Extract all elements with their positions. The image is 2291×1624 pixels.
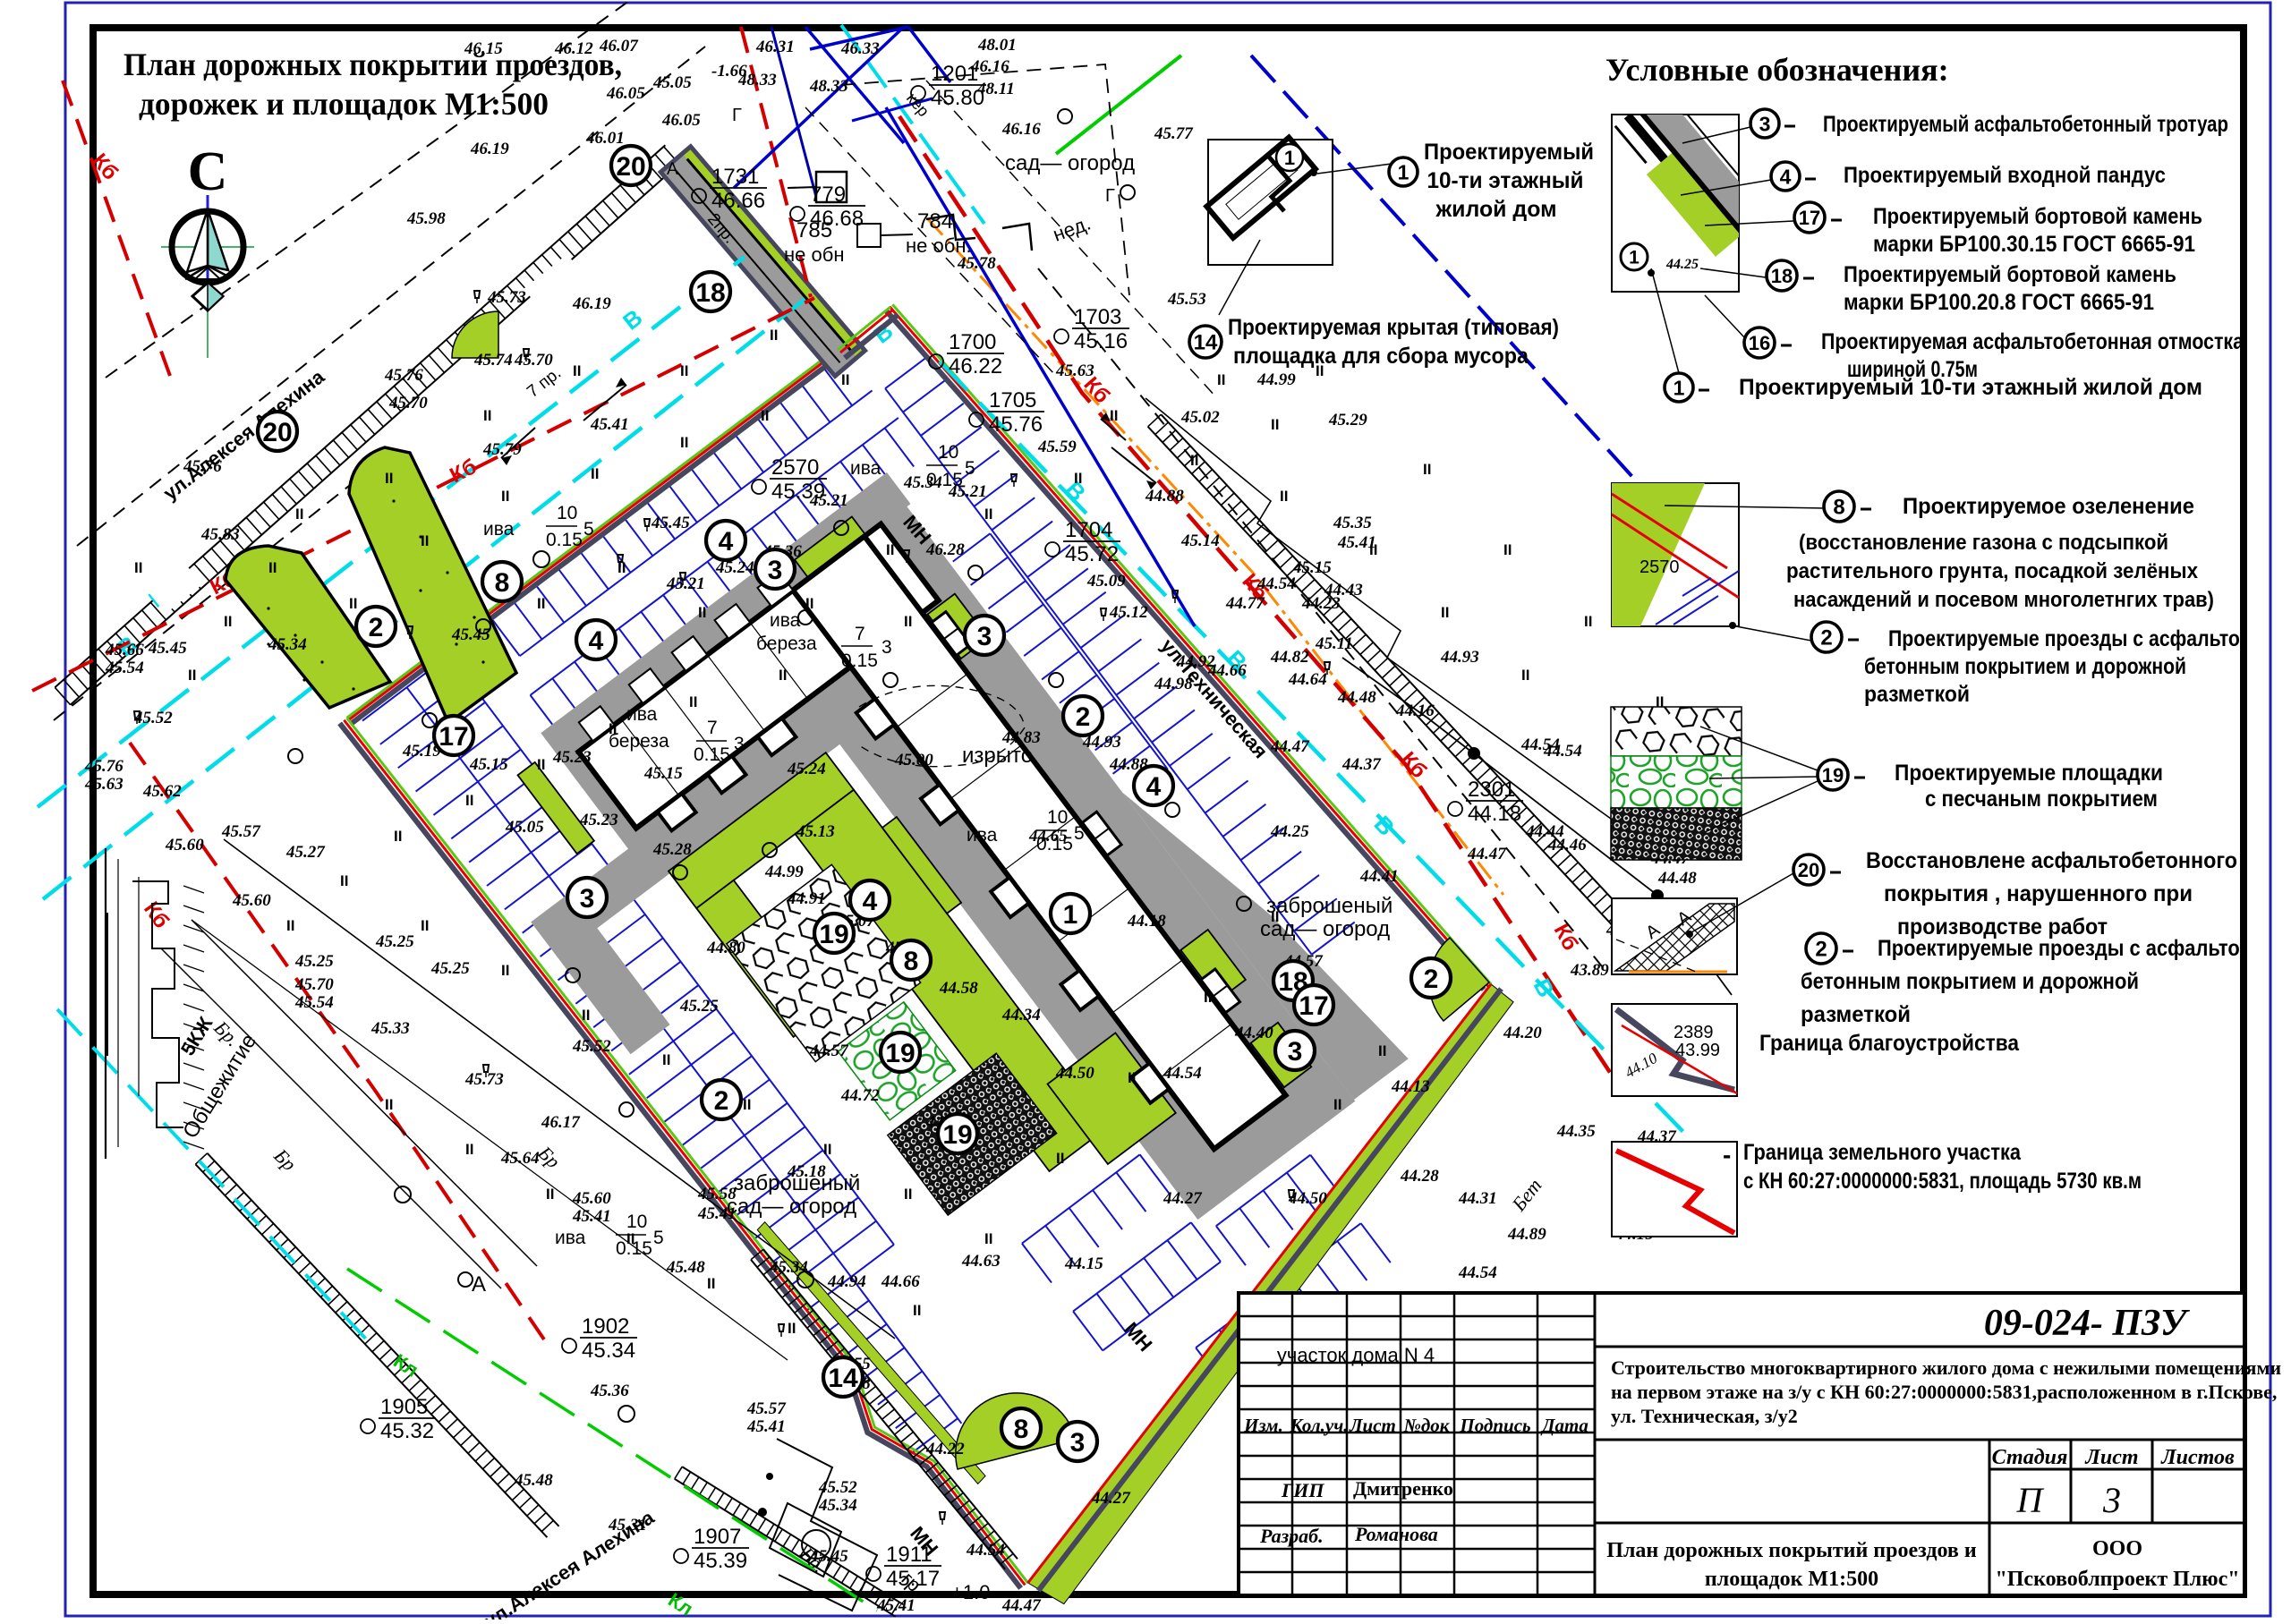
svg-text:1705: 1705 xyxy=(989,388,1036,412)
svg-text:сад— огород: сад— огород xyxy=(1005,151,1135,175)
svg-text:II: II xyxy=(626,1230,634,1247)
svg-text:44.22: 44.22 xyxy=(925,1440,965,1458)
svg-text:II: II xyxy=(609,720,617,737)
svg-text:1: 1 xyxy=(1629,248,1639,268)
svg-text:45.73: 45.73 xyxy=(487,288,526,307)
svg-text:не обн: не обн xyxy=(784,243,844,266)
svg-text:45.53: 45.53 xyxy=(1167,290,1206,309)
svg-text:45.36: 45.36 xyxy=(590,1382,629,1400)
svg-text:44.57: 44.57 xyxy=(809,1042,849,1060)
svg-text:44.94: 44.94 xyxy=(827,1272,866,1291)
svg-text:II: II xyxy=(286,917,294,934)
svg-text:II: II xyxy=(743,1096,751,1113)
svg-text:45.79: 45.79 xyxy=(482,440,522,459)
svg-text:46.28: 46.28 xyxy=(925,540,965,559)
svg-text:46.05: 46.05 xyxy=(661,111,701,130)
svg-text:10: 10 xyxy=(938,442,958,463)
svg-text:II: II xyxy=(1056,1150,1064,1167)
svg-text:17: 17 xyxy=(439,722,468,752)
svg-text:II: II xyxy=(1333,1096,1341,1113)
svg-text:45.32: 45.32 xyxy=(380,1419,434,1443)
svg-text:ива: ива xyxy=(850,458,881,479)
svg-text:45.59: 45.59 xyxy=(1037,438,1077,456)
svg-text:Проектируемые проезды с асфаль: Проектируемые проезды с асфальто- xyxy=(1888,626,2246,651)
svg-text:II: II xyxy=(573,362,581,379)
svg-text:46.31: 46.31 xyxy=(755,38,795,56)
svg-text:44.35: 44.35 xyxy=(1556,1122,1596,1141)
svg-text:II: II xyxy=(268,559,277,576)
svg-text:0.15: 0.15 xyxy=(841,650,878,671)
svg-text:5: 5 xyxy=(653,1228,664,1248)
svg-text:8: 8 xyxy=(1014,1415,1029,1444)
svg-text:45.09: 45.09 xyxy=(1086,572,1126,591)
svg-text:1700: 1700 xyxy=(949,330,996,354)
svg-text:II: II xyxy=(591,465,599,482)
svg-text:Условные обозначения:: Условные обозначения: xyxy=(1605,52,1949,88)
svg-text:44.28: 44.28 xyxy=(1400,1167,1439,1186)
svg-text:II: II xyxy=(1217,371,1225,388)
svg-text:45.24: 45.24 xyxy=(787,760,826,778)
svg-text:45.45: 45.45 xyxy=(809,1547,848,1566)
svg-text:1: 1 xyxy=(1284,147,1295,169)
svg-text:18: 18 xyxy=(695,278,725,308)
svg-text:(восстановление газона с подсы: (восстановление газона с подсыпкой xyxy=(1799,531,2168,555)
svg-text:II: II xyxy=(295,506,303,523)
svg-text:8: 8 xyxy=(1833,496,1844,520)
svg-text:II: II xyxy=(1280,488,1288,505)
svg-text:II: II xyxy=(340,872,348,889)
svg-text:45.48: 45.48 xyxy=(514,1471,553,1490)
svg-text:3: 3 xyxy=(768,556,783,585)
svg-text:с песчаным покрытием: с песчаным покрытием xyxy=(1925,786,2158,812)
svg-text:3: 3 xyxy=(580,884,595,914)
svg-text:45.70: 45.70 xyxy=(514,351,553,370)
svg-text:II: II xyxy=(886,541,894,558)
svg-text:45.29: 45.29 xyxy=(1328,411,1367,429)
svg-text:Проектируемый: Проектируемый xyxy=(1424,140,1594,165)
svg-text:45.13: 45.13 xyxy=(796,822,835,841)
svg-text:заброшеный: заброшеный xyxy=(1266,894,1392,918)
svg-text:48.01: 48.01 xyxy=(977,36,1017,55)
svg-text:779: 779 xyxy=(810,183,846,207)
svg-text:II: II xyxy=(188,667,196,684)
svg-text:44.47: 44.47 xyxy=(1467,845,1507,863)
svg-text:Подпись: Подпись xyxy=(1459,1415,1530,1436)
svg-text:44.99: 44.99 xyxy=(1256,370,1296,389)
svg-text:1: 1 xyxy=(1674,376,1685,399)
svg-text:С: С xyxy=(188,141,228,202)
svg-text:44.83: 44.83 xyxy=(1001,728,1041,747)
svg-text:на первом этаже на з/у с КН 60: на первом этаже на з/у с КН 60:27:000000… xyxy=(1611,1381,2277,1403)
svg-text:45.25: 45.25 xyxy=(294,952,334,971)
svg-text:44.64: 44.64 xyxy=(1288,670,1327,689)
svg-text:45.57: 45.57 xyxy=(221,822,261,841)
svg-text:II: II xyxy=(546,1186,554,1203)
svg-text:46.66: 46.66 xyxy=(711,189,765,213)
svg-text:43.99: 43.99 xyxy=(1675,1041,1720,1060)
svg-text:2: 2 xyxy=(1076,702,1091,732)
svg-text:45.60: 45.60 xyxy=(232,891,271,910)
svg-text:3: 3 xyxy=(734,734,745,754)
svg-text:45.45: 45.45 xyxy=(451,625,490,644)
svg-text:19: 19 xyxy=(1822,764,1844,786)
svg-text:II: II xyxy=(582,1007,590,1024)
svg-text:II: II xyxy=(1128,1069,1136,1086)
svg-text:45.45: 45.45 xyxy=(148,639,187,658)
svg-text:46.33: 46.33 xyxy=(840,39,880,58)
svg-text:45.78: 45.78 xyxy=(957,254,996,273)
svg-text:Проектируемые проезды с асфаль: Проектируемые проезды с асфальто- xyxy=(1878,936,2246,961)
svg-text:А: А xyxy=(472,1272,486,1297)
svg-text:45.23: 45.23 xyxy=(552,748,592,767)
svg-text:44.58: 44.58 xyxy=(939,979,978,998)
svg-text:бетонным покрытием и дорожной: бетонным покрытием и дорожной xyxy=(1864,654,2186,679)
svg-text:45.62: 45.62 xyxy=(142,782,182,801)
svg-text:Стадия: Стадия xyxy=(1992,1446,2068,1469)
svg-text:4: 4 xyxy=(1780,165,1792,188)
svg-text:45.21: 45.21 xyxy=(948,482,987,501)
svg-text:II: II xyxy=(823,1141,831,1158)
svg-text:17: 17 xyxy=(1299,991,1328,1021)
svg-text:45.27: 45.27 xyxy=(285,843,326,862)
svg-text:48.11: 48.11 xyxy=(976,80,1015,98)
svg-text:Проектируемые площадки: Проектируемые площадки xyxy=(1895,761,2163,786)
svg-text:44.65: 44.65 xyxy=(1028,827,1068,846)
svg-text:45.34: 45.34 xyxy=(582,1339,635,1363)
svg-text:Лист: Лист xyxy=(1349,1415,1396,1436)
svg-text:Изм.: Изм. xyxy=(1243,1415,1283,1436)
svg-text:18: 18 xyxy=(1771,265,1793,287)
svg-text:44.54: 44.54 xyxy=(1256,574,1296,593)
svg-text:45.35: 45.35 xyxy=(1333,514,1372,532)
svg-text:44.25: 44.25 xyxy=(1665,257,1699,272)
svg-text:10-ти этажный: 10-ти этажный xyxy=(1427,168,1584,193)
svg-text:44.34: 44.34 xyxy=(1001,1006,1041,1025)
svg-text:44.43: 44.43 xyxy=(1324,581,1363,599)
svg-text:разметкой: разметкой xyxy=(1801,1002,1911,1027)
svg-text:45.48: 45.48 xyxy=(666,1258,705,1277)
svg-text:45.12: 45.12 xyxy=(1109,603,1148,622)
svg-text:5: 5 xyxy=(1074,823,1085,844)
svg-text:II: II xyxy=(501,488,509,505)
svg-text:2: 2 xyxy=(1820,626,1832,650)
svg-text:Проектируемый входной пандус: Проектируемый входной пандус xyxy=(1844,163,2166,188)
svg-text:4: 4 xyxy=(1146,772,1162,802)
svg-text:II: II xyxy=(707,1275,715,1292)
svg-text:48.33: 48.33 xyxy=(809,77,848,96)
svg-text:1905: 1905 xyxy=(380,1395,428,1419)
svg-text:П: П xyxy=(2016,1480,2045,1520)
svg-text:2: 2 xyxy=(714,1086,729,1116)
svg-text:17: 17 xyxy=(1799,207,1820,229)
svg-text:45.60: 45.60 xyxy=(165,836,204,855)
svg-text:44.47: 44.47 xyxy=(1001,1596,1042,1615)
svg-text:0.15: 0.15 xyxy=(694,744,730,765)
svg-text:45.02: 45.02 xyxy=(1180,408,1220,427)
svg-text:45.70: 45.70 xyxy=(294,975,334,994)
svg-text:45.76: 45.76 xyxy=(384,366,423,385)
svg-text:II: II xyxy=(501,962,509,979)
svg-text:45.72: 45.72 xyxy=(1065,542,1119,566)
svg-text:45.63: 45.63 xyxy=(84,775,123,794)
svg-text:Дата: Дата xyxy=(1540,1415,1588,1436)
svg-text:45.15: 45.15 xyxy=(1292,558,1332,577)
svg-text:1704: 1704 xyxy=(1065,518,1112,542)
svg-text:45.15: 45.15 xyxy=(469,755,508,774)
svg-text:45.60: 45.60 xyxy=(572,1189,611,1208)
svg-text:44.54: 44.54 xyxy=(1458,1263,1497,1282)
svg-text:II: II xyxy=(1378,1042,1386,1059)
svg-text:ива: ива xyxy=(967,825,998,846)
svg-text:II: II xyxy=(984,1230,992,1247)
svg-text:II: II xyxy=(385,470,393,487)
svg-text:45.54: 45.54 xyxy=(294,993,334,1012)
svg-text:Дмитренко: Дмитренко xyxy=(1353,1477,1453,1500)
svg-text:45.98: 45.98 xyxy=(406,209,446,228)
svg-text:45.17: 45.17 xyxy=(886,1567,940,1591)
svg-text:45.34: 45.34 xyxy=(769,1258,808,1277)
svg-text:5: 5 xyxy=(583,519,594,540)
svg-text:45.05: 45.05 xyxy=(652,73,692,92)
svg-text:бетонным покрытием и дорожной: бетонным покрытием и дорожной xyxy=(1801,969,2139,994)
svg-text:44.16: 44.16 xyxy=(1395,701,1435,720)
svg-text:Граница земельного участка: Граница земельного участка xyxy=(1743,1140,2022,1165)
svg-text:1902: 1902 xyxy=(582,1314,629,1339)
svg-text:45.14: 45.14 xyxy=(1180,531,1220,550)
svg-text:разметкой: разметкой xyxy=(1864,682,1970,707)
svg-text:сад— огород: сад— огород xyxy=(1260,917,1390,941)
svg-text:береза: береза xyxy=(609,731,669,752)
svg-text:Проектируемый 10-ти этажный жи: Проектируемый 10-ти этажный жилой дом xyxy=(1739,375,2202,400)
svg-text:Г: Г xyxy=(1105,186,1115,206)
svg-text:45.39: 45.39 xyxy=(694,1549,747,1573)
svg-text:растительного грунта, посадкой: растительного грунта, посадкой зелёных xyxy=(1786,559,2199,583)
svg-text:1731: 1731 xyxy=(711,165,759,189)
svg-text:II: II xyxy=(680,434,688,451)
svg-text:45.70: 45.70 xyxy=(388,394,428,412)
svg-text:Граница благоустройства: Граница благоустройства xyxy=(1759,1031,2020,1056)
svg-text:3: 3 xyxy=(1759,112,1771,135)
svg-text:46.16: 46.16 xyxy=(1001,120,1041,139)
svg-text:площадок М1:500: площадок М1:500 xyxy=(1705,1568,1878,1591)
svg-text:45.25: 45.25 xyxy=(375,932,414,951)
svg-text:II: II xyxy=(662,1051,670,1068)
svg-text:3: 3 xyxy=(977,622,992,651)
svg-text:44.48: 44.48 xyxy=(1657,869,1697,888)
svg-text:Романова: Романова xyxy=(1354,1523,1438,1545)
svg-text:сад— огород: сад— огород xyxy=(727,1195,856,1219)
svg-text:44.77: 44.77 xyxy=(1225,594,1265,613)
svg-text:45.76: 45.76 xyxy=(989,412,1043,437)
svg-text:участок дома N 4: участок дома N 4 xyxy=(1277,1344,1435,1366)
svg-text:44.99: 44.99 xyxy=(764,863,804,881)
svg-text:II: II xyxy=(1271,908,1279,925)
svg-text:45.41: 45.41 xyxy=(697,1204,737,1223)
svg-text:45.21: 45.21 xyxy=(809,491,848,510)
svg-text:44.54: 44.54 xyxy=(1543,742,1582,761)
svg-text:II: II xyxy=(1110,407,1118,424)
svg-text:покрытия , нарушенного при: покрытия , нарушенного при xyxy=(1884,881,2193,906)
svg-text:0.15: 0.15 xyxy=(546,530,583,550)
svg-text:II: II xyxy=(1423,461,1431,478)
svg-text:2570: 2570 xyxy=(771,455,819,480)
svg-text:46.01: 46.01 xyxy=(585,129,625,148)
svg-text:II: II xyxy=(1521,667,1529,684)
svg-text:45.45: 45.45 xyxy=(651,514,690,532)
svg-text:II: II xyxy=(394,828,402,845)
svg-text:II: II xyxy=(465,1141,473,1158)
svg-text:45.41: 45.41 xyxy=(876,1596,916,1615)
svg-text:45.52: 45.52 xyxy=(572,1037,611,1056)
svg-text:II: II xyxy=(698,604,706,621)
svg-text:45.77: 45.77 xyxy=(1154,124,1194,143)
svg-text:А: А xyxy=(667,160,678,179)
svg-text:44.44: 44.44 xyxy=(1525,822,1564,841)
svg-text:1: 1 xyxy=(1063,900,1078,930)
svg-text:Лист: Лист xyxy=(2084,1446,2138,1469)
svg-text:14: 14 xyxy=(828,1364,858,1393)
svg-text:44.25: 44.25 xyxy=(1270,822,1309,841)
svg-text:Проектируемое озеленение: Проектируемое озеленение xyxy=(1903,494,2194,519)
svg-text:II: II xyxy=(421,532,429,549)
svg-text:1911: 1911 xyxy=(886,1543,933,1567)
svg-text:45.58: 45.58 xyxy=(697,1185,737,1203)
svg-text:1703: 1703 xyxy=(1074,305,1121,329)
svg-text:44.15: 44.15 xyxy=(1064,1254,1103,1273)
svg-text:II: II xyxy=(1190,452,1198,469)
svg-text:II: II xyxy=(841,371,849,388)
svg-text:ул. Техническая, з/у2: ул. Техническая, з/у2 xyxy=(1611,1405,1798,1427)
svg-text:II: II xyxy=(421,917,429,934)
svg-text:2: 2 xyxy=(369,613,384,642)
svg-text:44.72: 44.72 xyxy=(840,1086,880,1105)
svg-text:II: II xyxy=(1584,613,1592,630)
svg-text:Восстановлене асфальтобетонног: Восстановлене асфальтобетонного xyxy=(1866,848,2237,873)
svg-text:45.34: 45.34 xyxy=(818,1496,857,1515)
svg-text:5: 5 xyxy=(965,458,975,479)
svg-text:II: II xyxy=(680,362,688,379)
svg-text:2389: 2389 xyxy=(1674,1023,1714,1042)
svg-text:II: II xyxy=(349,595,357,612)
svg-text:44.89: 44.89 xyxy=(1507,1225,1546,1244)
svg-text:2: 2 xyxy=(1815,938,1827,962)
svg-text:II: II xyxy=(761,407,769,424)
svg-text:II: II xyxy=(770,327,778,344)
svg-text:45.54: 45.54 xyxy=(105,659,144,677)
svg-text:45.16: 45.16 xyxy=(1074,329,1128,353)
svg-text:44.54: 44.54 xyxy=(966,1541,1005,1560)
svg-text:45.05: 45.05 xyxy=(505,818,544,837)
svg-text:2301: 2301 xyxy=(1468,778,1515,802)
svg-text:44.98: 44.98 xyxy=(1154,675,1193,693)
svg-text:II: II xyxy=(904,613,912,630)
svg-text:4: 4 xyxy=(719,527,734,557)
svg-text:ООО: ООО xyxy=(2092,1537,2142,1560)
svg-text:8: 8 xyxy=(495,568,510,598)
svg-text:Проектируемый асфальтобетонный: Проектируемый асфальтобетонный тротуар xyxy=(1823,112,2228,137)
svg-text:II: II xyxy=(537,595,545,612)
svg-text:45.18: 45.18 xyxy=(787,1162,826,1181)
svg-text:45.11: 45.11 xyxy=(1315,634,1353,653)
svg-text:II: II xyxy=(1441,604,1449,621)
svg-text:II: II xyxy=(788,1320,796,1337)
svg-text:План дорожных покрытий проездо: План дорожных покрытий проездов, xyxy=(123,47,622,82)
svg-text:изрыто: изрыто xyxy=(962,744,1033,768)
svg-text:ива: ива xyxy=(626,704,658,725)
svg-text:14: 14 xyxy=(1194,331,1218,355)
svg-text:44.13: 44.13 xyxy=(1391,1077,1430,1096)
svg-text:46.22: 46.22 xyxy=(949,354,1002,378)
svg-text:План дорожных покрытий проездо: План дорожных покрытий проездов и xyxy=(1606,1539,1977,1562)
svg-text:44.93: 44.93 xyxy=(1440,648,1479,667)
svg-text:II: II xyxy=(904,1186,912,1203)
svg-text:2570: 2570 xyxy=(1639,557,1680,577)
svg-text:44.91: 44.91 xyxy=(787,889,826,908)
svg-text:44.41: 44.41 xyxy=(1359,867,1399,886)
svg-text:45.57: 45.57 xyxy=(746,1399,787,1418)
svg-text:45.41: 45.41 xyxy=(572,1207,611,1226)
svg-text:4: 4 xyxy=(863,887,878,916)
svg-text:II: II xyxy=(537,756,545,773)
svg-text:7: 7 xyxy=(707,718,718,738)
svg-text:44.18: 44.18 xyxy=(1127,912,1166,931)
svg-text:II: II xyxy=(385,1096,393,1113)
svg-text:45.23: 45.23 xyxy=(579,811,618,829)
svg-text:43.89: 43.89 xyxy=(1570,961,1609,980)
svg-text:45.41: 45.41 xyxy=(590,415,629,434)
svg-text:дорожек и площадок М1:500: дорожек и площадок М1:500 xyxy=(139,86,549,122)
svg-text:ГИП: ГИП xyxy=(1281,1479,1324,1501)
svg-text:44.54: 44.54 xyxy=(1163,1064,1202,1083)
svg-text:20: 20 xyxy=(262,418,292,447)
svg-text:№док: №док xyxy=(1403,1415,1451,1436)
svg-text:44.63: 44.63 xyxy=(961,1252,1001,1271)
svg-text:Кол.уч.: Кол.уч. xyxy=(1289,1415,1348,1436)
svg-text:45.00: 45.00 xyxy=(894,751,933,769)
svg-text:44.50: 44.50 xyxy=(1055,1064,1094,1083)
svg-text:II: II xyxy=(779,667,787,684)
svg-text:44.40: 44.40 xyxy=(1234,1024,1273,1042)
svg-text:09-024- ПЗУ: 09-024- ПЗУ xyxy=(1984,1303,2191,1344)
svg-text:45.74: 45.74 xyxy=(473,351,513,370)
svg-text:44.37: 44.37 xyxy=(1341,755,1382,774)
svg-text:44.20: 44.20 xyxy=(1503,1024,1542,1042)
svg-text:45.31: 45.31 xyxy=(608,1516,647,1535)
svg-text:45.76: 45.76 xyxy=(183,457,222,476)
svg-text:Г: Г xyxy=(732,106,742,125)
svg-text:10: 10 xyxy=(626,1212,647,1232)
svg-text:45.83: 45.83 xyxy=(200,525,240,544)
svg-text:46.19: 46.19 xyxy=(470,140,509,158)
svg-text:с КН 60:27:0000000:5831, площа: с КН 60:27:0000000:5831, площадь 5730 кв… xyxy=(1743,1169,2142,1194)
svg-text:46.17: 46.17 xyxy=(541,1113,581,1132)
svg-text:-1.66: -1.66 xyxy=(711,62,747,81)
svg-text:45.15: 45.15 xyxy=(643,764,683,783)
svg-text:44.66: 44.66 xyxy=(881,1272,920,1291)
svg-text:Строительство многоквартирного: Строительство многоквартирного жилого до… xyxy=(1611,1356,2281,1379)
svg-text:45.25: 45.25 xyxy=(430,959,470,978)
svg-text:44.80: 44.80 xyxy=(706,939,745,957)
svg-text:ива: ива xyxy=(555,1228,586,1248)
svg-text:46.19: 46.19 xyxy=(572,294,611,313)
svg-text:ива: ива xyxy=(483,519,515,540)
svg-text:45.41: 45.41 xyxy=(746,1417,786,1436)
svg-text:II: II xyxy=(1271,416,1279,433)
svg-text:10: 10 xyxy=(557,503,577,523)
svg-text:II: II xyxy=(913,1302,921,1319)
svg-text:марки БР100.30.15 ГОСТ 6665-: марки БР100.30.15 ГОСТ 6665-91 xyxy=(1873,232,2195,257)
svg-text:марки БР100.20.8 ГОСТ 6665-9: марки БР100.20.8 ГОСТ 6665-91 xyxy=(1844,290,2154,315)
